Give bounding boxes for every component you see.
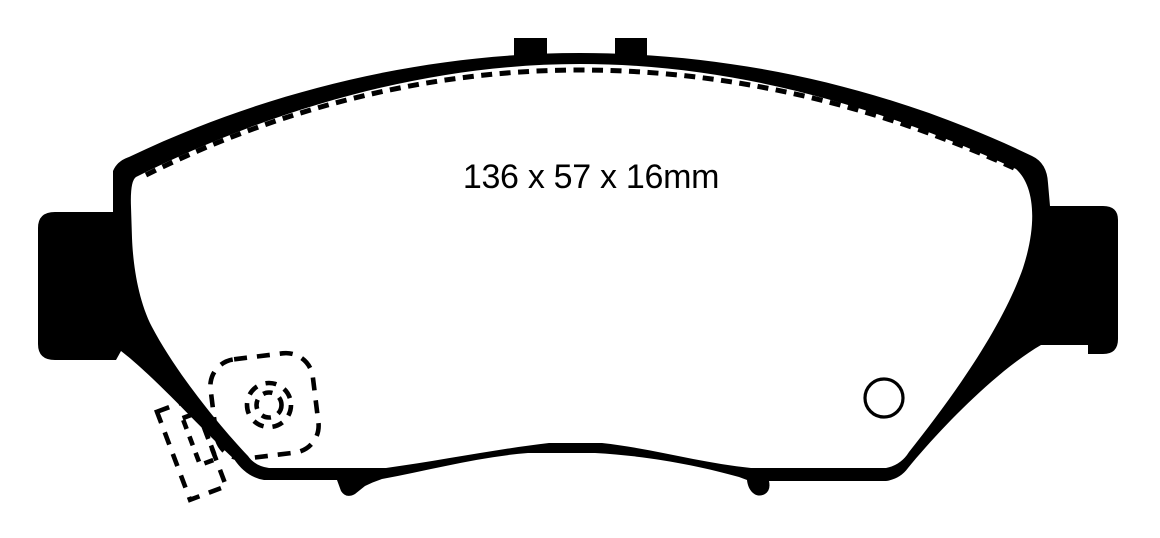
diagram-canvas: 136 x 57 x 16mm xyxy=(0,0,1160,538)
dimension-label: 136 x 57 x 16mm xyxy=(463,158,719,196)
brake-pad-diagram: 136 x 57 x 16mm xyxy=(0,0,1160,538)
